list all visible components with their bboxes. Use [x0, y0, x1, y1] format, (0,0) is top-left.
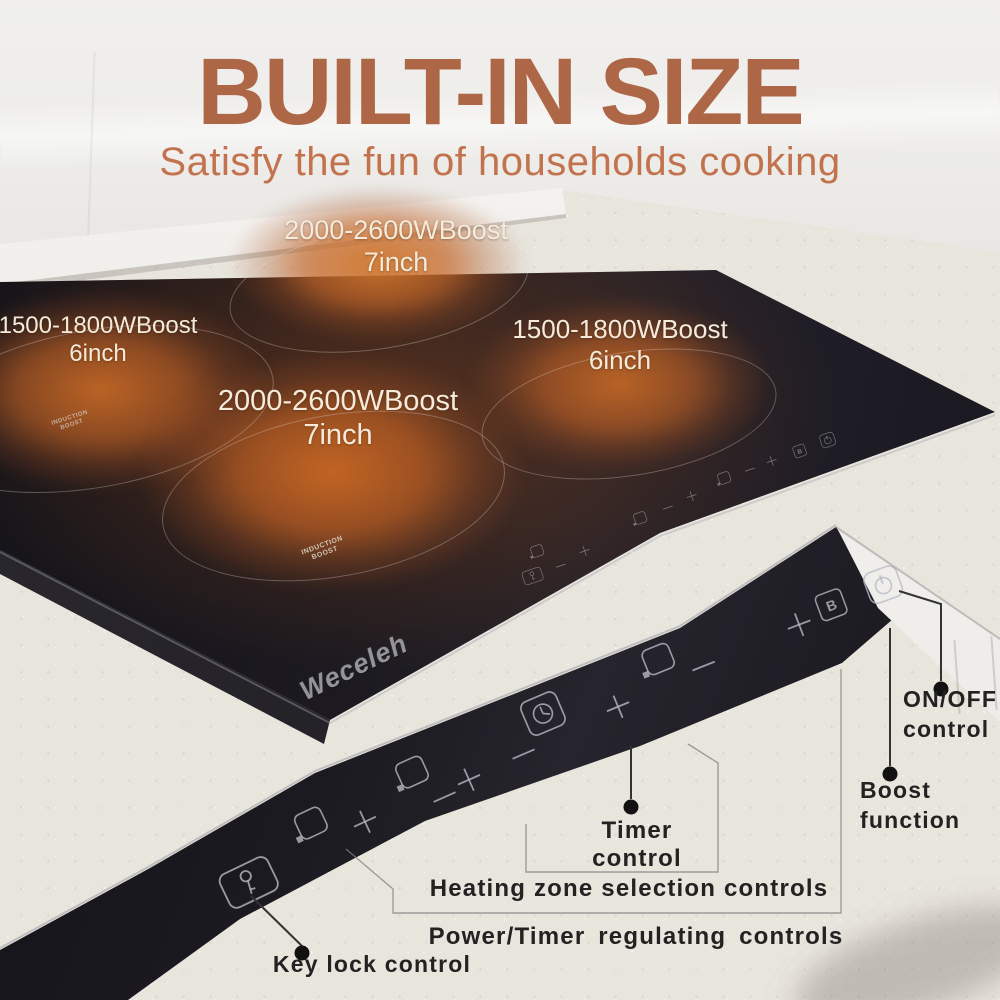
- burner-size: 7inch: [284, 247, 508, 279]
- timer-control-label: Timer control: [572, 817, 702, 873]
- burner-size: 6inch: [0, 340, 197, 368]
- burner-power: 1500-1800WBoost: [0, 312, 197, 340]
- burner-power: 1500-1800WBoost: [512, 314, 727, 345]
- burner-label-center: 2000-2600WBoost 7inch: [218, 384, 458, 452]
- timer-dot: [624, 800, 639, 815]
- key-lock-label: Key lock control: [273, 951, 471, 978]
- svg-text:B: B: [797, 448, 804, 456]
- on-off-control-label: ON/OFF control: [903, 684, 1000, 744]
- page-title: BUILT-IN SIZE: [197, 38, 803, 147]
- boost-function-label: Boost function: [860, 775, 995, 835]
- burner-size: 6inch: [512, 345, 727, 376]
- burner-label-top: 2000-2600WBoost 7inch: [284, 215, 508, 279]
- burner-power: 2000-2600WBoost: [218, 384, 458, 418]
- power-timer-label: Power/Timer regulating controls: [429, 923, 844, 951]
- heating-zone-label: Heating zone selection controls: [430, 875, 829, 903]
- svg-text:B: B: [824, 597, 839, 616]
- burner-label-left: 1500-1800WBoost 6inch: [0, 312, 197, 369]
- page-subtitle: Satisfy the fun of households cooking: [159, 140, 840, 185]
- product-infographic: 2000-2600WBoost 7inch 1500-1800WBoost 6i…: [0, 0, 1000, 1000]
- burner-label-right: 1500-1800WBoost 6inch: [512, 314, 727, 375]
- burner-size: 7inch: [218, 418, 458, 452]
- burner-power: 2000-2600WBoost: [284, 215, 508, 247]
